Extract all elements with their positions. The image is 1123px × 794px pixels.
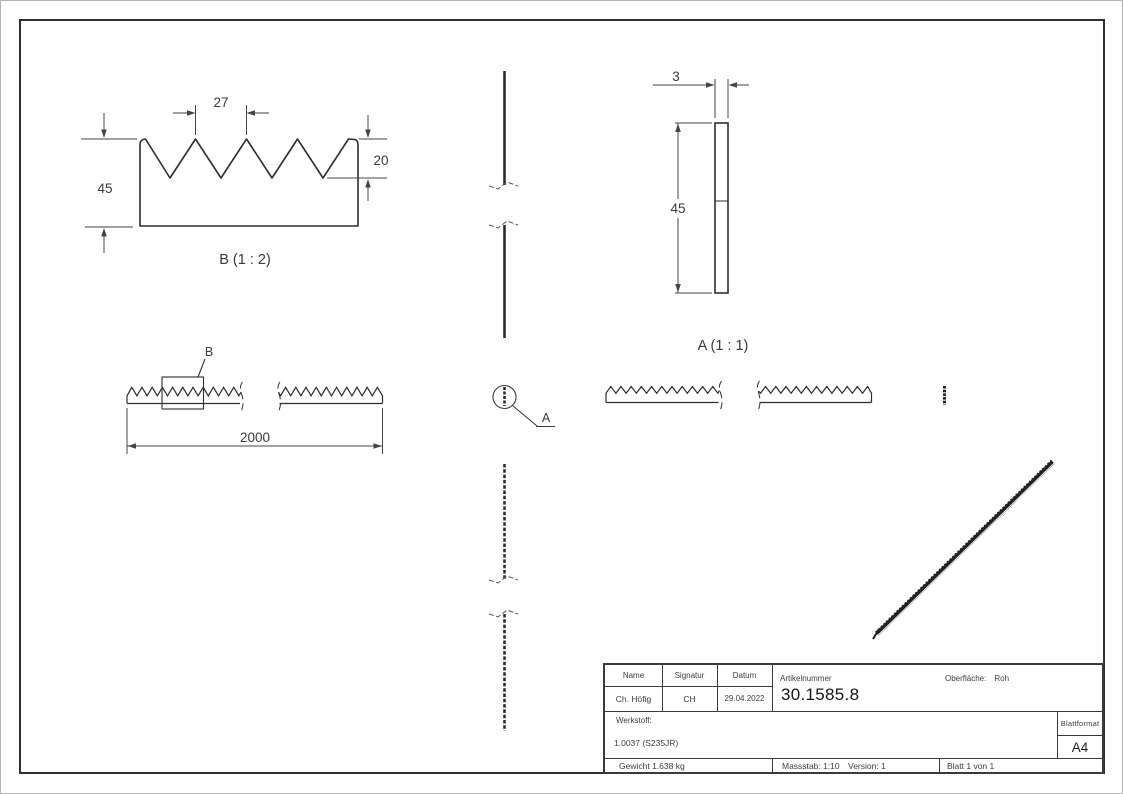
- tb-header-artikelnummer: Artikelnummer: [780, 673, 832, 683]
- detail-view-b: 27 45 20 B (1 : 2): [81, 95, 389, 268]
- detail-b-profile: [140, 139, 358, 226]
- side-view-bottom: [489, 464, 518, 731]
- break-line: [278, 382, 281, 413]
- detail-b-leader: [198, 359, 205, 377]
- tb-header-signatur: Signatur: [662, 665, 717, 686]
- tb-oberflaeche-label: Oberfläche:: [945, 674, 986, 683]
- tb-header-datum: Datum: [717, 665, 772, 686]
- section-a-dim-3: [653, 79, 749, 118]
- detail-b-dim-20-text: 20: [373, 153, 388, 168]
- tb-gewicht: Gewicht 1.638 kg: [619, 759, 685, 773]
- break-line: [757, 381, 760, 412]
- section-marker-a: A: [493, 386, 555, 427]
- detail-b-view-label: B (1 : 2): [219, 252, 271, 268]
- isometric-view: [873, 460, 1054, 639]
- front-view: [127, 359, 383, 413]
- detail-box-b: [162, 377, 204, 409]
- tb-value-name: Ch. Höfig: [605, 686, 662, 711]
- detail-b-dim-27-text: 27: [213, 95, 228, 110]
- back-view: [606, 381, 945, 412]
- tb-version: Version: 1: [848, 759, 886, 773]
- break-line: [719, 381, 722, 412]
- tb-massstab: Massstab: 1:10: [782, 759, 840, 773]
- front-view-dim-2000-text: 2000: [240, 430, 270, 445]
- break-line: [240, 382, 243, 413]
- tb-oberflaeche-value: Roh: [994, 674, 1009, 683]
- section-a-dim-3-text: 3: [672, 69, 680, 84]
- tb-value-werkstoff: 1.0037 (S235JR): [614, 737, 678, 748]
- section-a-dim-45-text: 45: [670, 201, 685, 216]
- front-strip-right: [279, 387, 383, 403]
- back-strip-left: [606, 387, 720, 403]
- tb-value-signatur: CH: [662, 686, 717, 711]
- tb-header-blattformat: Blattformat: [1058, 712, 1102, 735]
- front-strip-left: [127, 387, 241, 403]
- tb-value-datum: 29.04.2022: [717, 686, 772, 711]
- back-strip-right: [759, 387, 872, 403]
- section-a-view-label: A (1 : 1): [698, 338, 749, 354]
- detail-b-marker-label: B: [205, 345, 213, 359]
- drawing-sheet: 27 45 20 B (1 : 2): [0, 0, 1123, 794]
- section-view-a: 3 45 A (1 : 1): [653, 69, 749, 354]
- title-block: Name Signatur Datum Ch. Höfig CH 29.04.2…: [603, 663, 1104, 774]
- tb-header-name: Name: [605, 665, 662, 686]
- tb-value-blattformat: A4: [1058, 736, 1102, 758]
- tb-value-artikelnummer: 30.1585.8: [781, 685, 859, 705]
- tb-blatt: Blatt 1 von 1: [947, 759, 994, 773]
- side-view-top: [489, 71, 518, 338]
- tb-header-werkstoff: Werkstoff:: [616, 715, 652, 725]
- section-a-marker-label: A: [542, 411, 551, 425]
- detail-b-dim-45-text: 45: [97, 181, 112, 196]
- tb-header-oberflaeche: Oberfläche: Roh: [945, 673, 1009, 683]
